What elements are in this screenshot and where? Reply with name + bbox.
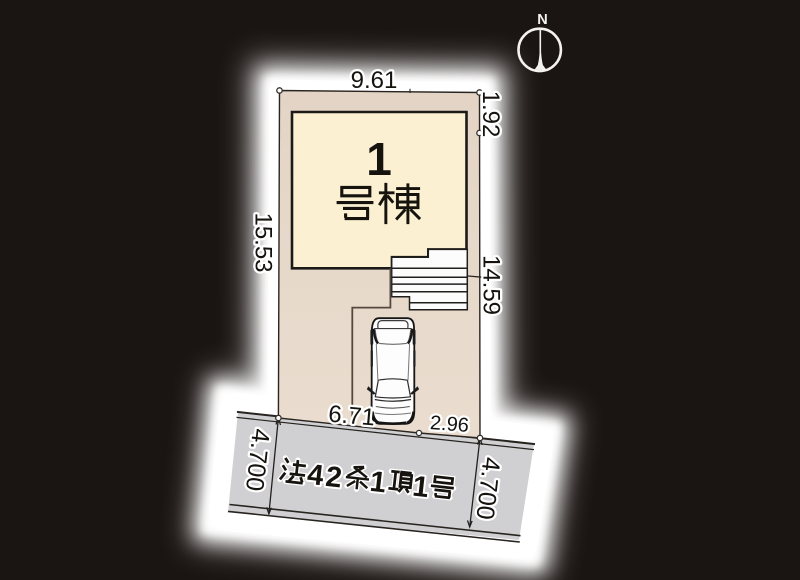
svg-text:1: 1 bbox=[366, 133, 392, 185]
svg-text:9.61: 9.61 bbox=[351, 67, 398, 94]
svg-text:1.92: 1.92 bbox=[477, 91, 504, 138]
svg-text:2.96: 2.96 bbox=[429, 412, 470, 437]
svg-text:15.53: 15.53 bbox=[250, 212, 277, 272]
svg-text:N: N bbox=[537, 12, 547, 28]
svg-text:6.71: 6.71 bbox=[327, 401, 376, 432]
svg-text:14.59: 14.59 bbox=[478, 255, 505, 315]
